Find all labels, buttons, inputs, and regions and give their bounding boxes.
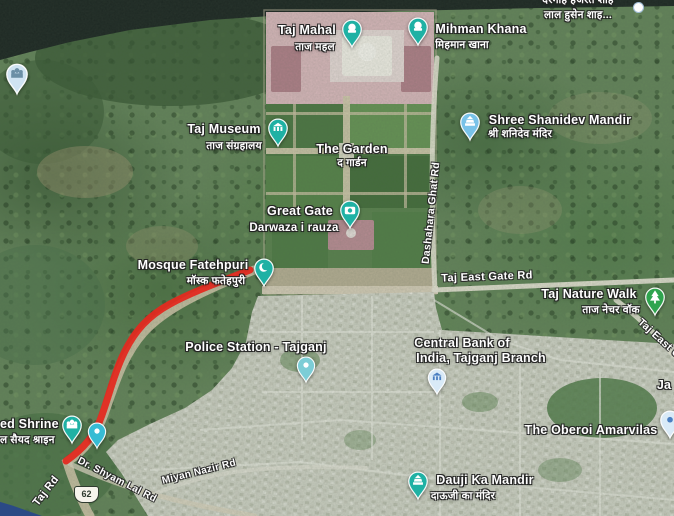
taj-museum-label[interactable]: ताज संग्रहालय	[206, 139, 262, 153]
mosque-fatehpuri-pin[interactable]	[253, 258, 275, 293]
riverside-poi-pin[interactable]	[5, 63, 29, 101]
great-gate-label[interactable]: Great Gate	[267, 204, 333, 218]
mihman-khana-pin[interactable]	[407, 17, 429, 52]
syed-shrine-pin[interactable]	[61, 415, 83, 450]
central-bank-tajganj-label[interactable]: India, Tajganj Branch	[416, 351, 546, 365]
police-station-tajganj-label[interactable]: Police Station - Tajganj	[185, 340, 326, 354]
taj-nature-walk-label[interactable]: Taj Nature Walk	[541, 287, 636, 301]
shree-shanidev-mandir-label[interactable]: श्री शनिदेव मंदिर	[488, 127, 552, 141]
syed-shrine-label[interactable]: ल सैयद श्राइन	[0, 433, 55, 447]
taj-nature-walk-label[interactable]: ताज नेचर वॉक	[582, 303, 640, 317]
the-garden-label[interactable]: The Garden	[316, 142, 387, 156]
small-poi-dot[interactable]	[633, 2, 644, 13]
central-bank-tajganj-pin[interactable]	[427, 368, 447, 401]
mihman-khana-label[interactable]: मिहमान खाना	[435, 38, 489, 52]
dauji-ka-mandir-label[interactable]: दाऊजी का मंदिर	[431, 489, 495, 503]
shree-shanidev-mandir-label[interactable]: Shree Shanidev Mandir	[489, 113, 631, 127]
great-gate-label[interactable]: Darwaza i rauza	[249, 222, 338, 234]
taj-mahal-label[interactable]: Taj Mahal	[278, 23, 336, 37]
taj-nature-walk-pin[interactable]	[644, 287, 666, 322]
shrine-neighbor-pin[interactable]	[87, 422, 107, 455]
central-bank-tajganj-label[interactable]: Central Bank of	[414, 336, 509, 350]
taj-mahal-pin[interactable]	[341, 19, 363, 54]
mosque-fatehpuri-label[interactable]: Mosque Fatehpuri	[138, 258, 249, 272]
route-shield-number: 62	[81, 490, 91, 499]
shree-shanidev-mandir-pin[interactable]	[459, 112, 481, 147]
route-62-shield: 62	[74, 486, 99, 503]
dargah-label-label[interactable]: दरगाह हजरत शाह	[542, 0, 613, 7]
mosque-fatehpuri-label[interactable]: मॉस्क फतेहपुरी	[187, 274, 246, 288]
mihman-khana-label[interactable]: Mihman Khana	[435, 22, 526, 36]
ja-partial-label[interactable]: Ja	[657, 378, 671, 392]
the-garden-label[interactable]: द गार्डन	[337, 156, 367, 170]
great-gate-pin[interactable]	[339, 200, 361, 235]
police-station-tajganj-pin[interactable]	[296, 356, 316, 389]
dauji-ka-mandir-pin[interactable]	[407, 471, 429, 506]
dauji-ka-mandir-label[interactable]: Dauji Ka Mandir	[436, 473, 533, 487]
oberoi-amarvilas-pin[interactable]	[659, 410, 674, 445]
taj-museum-pin[interactable]	[267, 118, 289, 153]
taj-mahal-label[interactable]: ताज महल	[295, 40, 335, 54]
syed-shrine-label[interactable]: ed Shrine	[0, 417, 59, 431]
oberoi-amarvilas-label[interactable]: The Oberoi Amarvilas	[525, 423, 658, 437]
satellite-map[interactable]: 62 Taj Mahalताज महलMihman Khanaमिहमान खा…	[0, 0, 674, 516]
dargah-label-label[interactable]: लाल हुसेन शाह...	[544, 8, 612, 22]
taj-museum-label[interactable]: Taj Museum	[187, 122, 260, 136]
